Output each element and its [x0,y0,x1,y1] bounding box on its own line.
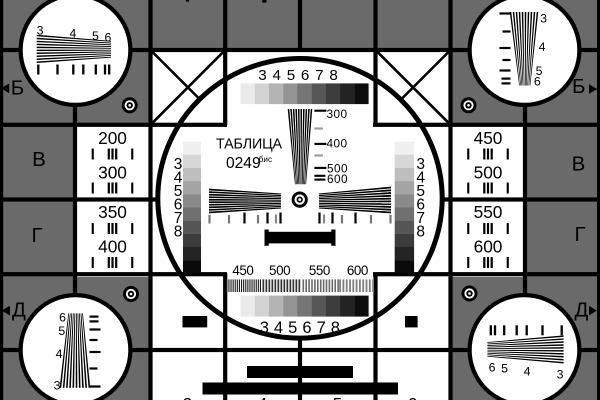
svg-text:5: 5 [288,319,297,337]
svg-text:400: 400 [98,237,127,257]
svg-text:5: 5 [58,324,65,338]
svg-text:8: 8 [331,319,340,337]
svg-text:Д: Д [575,299,589,322]
svg-text:Г: Г [574,223,585,246]
svg-text:4: 4 [69,26,76,40]
svg-text:3: 3 [258,67,266,84]
svg-text:3: 3 [37,24,44,38]
svg-text:6: 6 [489,361,496,375]
svg-text:6: 6 [301,67,309,84]
svg-text:500: 500 [269,263,290,278]
svg-text:4: 4 [56,347,63,361]
svg-text:8: 8 [416,224,425,241]
svg-text:4: 4 [258,395,267,400]
svg-text:200: 200 [98,128,127,148]
svg-text:Б: Б [11,76,24,99]
svg-text:3: 3 [260,319,269,337]
svg-text:6: 6 [534,75,541,89]
svg-text:600: 600 [347,263,368,278]
svg-text:бис: бис [259,155,272,164]
svg-text:8: 8 [329,67,337,84]
svg-text:4: 4 [274,319,283,337]
svg-text:5: 5 [501,362,508,376]
svg-text:300: 300 [327,107,348,121]
svg-text:Г: Г [31,224,42,247]
svg-text:450: 450 [232,263,253,278]
svg-text:4: 4 [272,67,280,84]
svg-text:6: 6 [302,319,311,337]
svg-text:500: 500 [474,162,503,182]
svg-text:4: 4 [539,40,546,54]
svg-text:Б: Б [572,75,585,98]
svg-text:7: 7 [315,67,323,84]
svg-text:550: 550 [474,202,503,222]
svg-text:3: 3 [183,395,192,400]
svg-text:Д: Д [12,299,26,322]
svg-text:600: 600 [327,172,348,186]
svg-text:5: 5 [92,29,99,43]
svg-text:5: 5 [287,67,295,84]
svg-text:0249: 0249 [226,155,261,172]
svg-text:600: 600 [474,237,503,257]
svg-text:В: В [32,148,46,171]
svg-text:400: 400 [327,137,348,151]
svg-text:6: 6 [104,31,111,45]
svg-text:4: 4 [524,365,531,379]
svg-text:450: 450 [474,128,503,148]
svg-text:8: 8 [174,224,183,241]
svg-text:5: 5 [333,395,342,400]
svg-text:7: 7 [317,319,326,337]
svg-text:300: 300 [98,162,127,182]
svg-text:6: 6 [408,395,417,400]
svg-text:В: В [572,153,586,176]
svg-text:6: 6 [59,311,66,325]
svg-text:ТАБЛИЦА: ТАБЛИЦА [216,137,283,153]
svg-text:3: 3 [54,379,61,393]
svg-text:3: 3 [540,12,547,26]
svg-text:350: 350 [98,202,127,222]
svg-text:550: 550 [309,263,330,278]
svg-text:3: 3 [557,368,564,382]
